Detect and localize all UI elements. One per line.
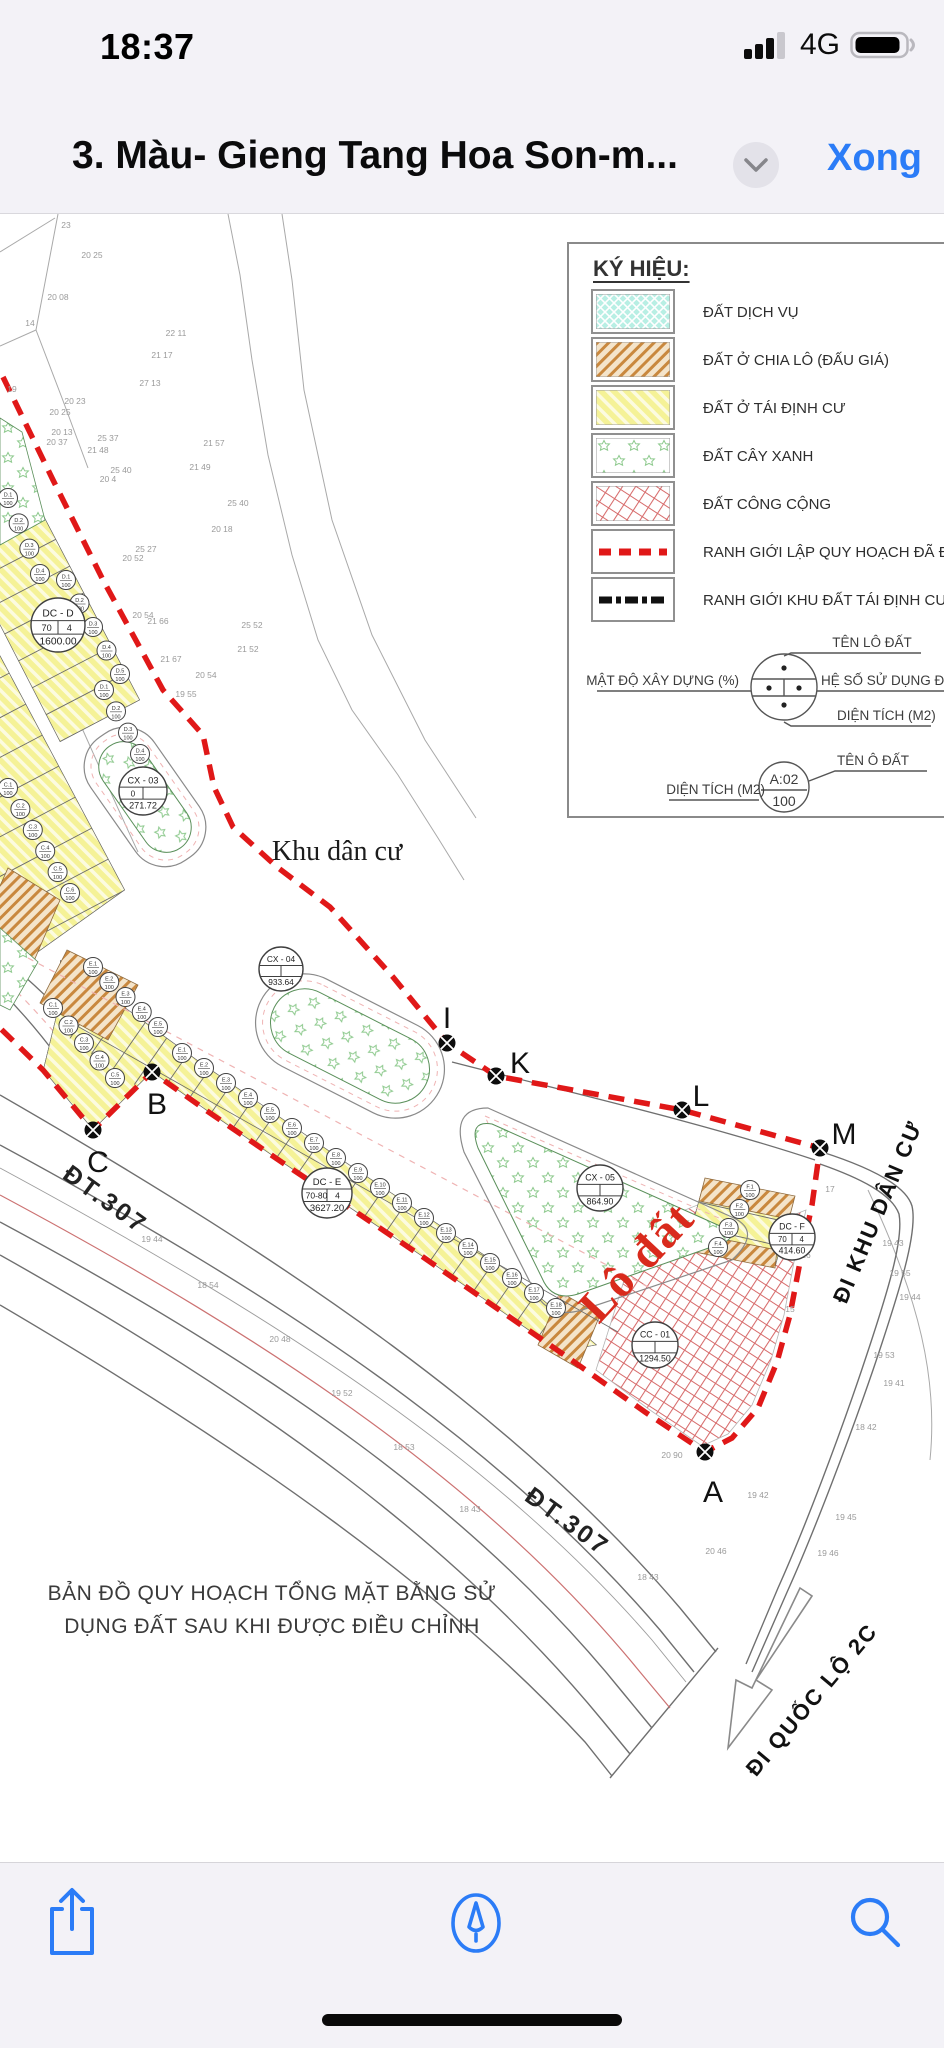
svg-text:100: 100	[265, 1116, 274, 1122]
svg-text:18 54: 18 54	[197, 1280, 219, 1290]
lot-circle: C.4100	[90, 1051, 109, 1070]
lot-circle: C.3100	[23, 821, 42, 840]
lot-circle: C.5100	[106, 1069, 125, 1088]
svg-text:D.3: D.3	[25, 543, 34, 549]
svg-text:70: 70	[778, 1235, 787, 1244]
svg-text:21 17: 21 17	[151, 350, 173, 360]
svg-text:K: K	[510, 1047, 530, 1080]
svg-text:4: 4	[67, 623, 72, 633]
svg-text:20 90: 20 90	[661, 1450, 683, 1460]
lot-circle: D.4100	[131, 745, 150, 764]
status-bar: 18:37 4G	[0, 0, 944, 90]
plot-circle-CC-01: CC - 011294.50	[632, 1322, 678, 1368]
svg-text:E.9: E.9	[354, 1168, 362, 1174]
svg-text:E.12: E.12	[418, 1213, 429, 1219]
svg-text:70-80: 70-80	[306, 1191, 328, 1201]
lot-circle: F.3100	[719, 1219, 738, 1238]
svg-text:100: 100	[199, 1071, 208, 1077]
legend-item-tai-dinh-cu: ĐẤT Ở TÁI ĐỊNH CƯ	[591, 387, 846, 430]
plot-circle-CX-03: CX - 030271.72	[119, 767, 167, 815]
boundary-point-A: A	[697, 1444, 724, 1510]
svg-text:1294.50: 1294.50	[639, 1354, 671, 1364]
svg-text:21 48: 21 48	[87, 445, 109, 455]
svg-text:19: 19	[7, 384, 17, 394]
svg-text:20 25: 20 25	[81, 250, 103, 260]
svg-text:100: 100	[28, 833, 37, 839]
svg-text:C.5: C.5	[53, 867, 62, 873]
legend-dien-tich: DIỆN TÍCH (M2)	[837, 708, 936, 723]
svg-text:E.5: E.5	[266, 1108, 274, 1114]
lot-circle: C.6100	[61, 884, 80, 903]
svg-text:22 11: 22 11	[166, 328, 187, 338]
svg-text:E.3: E.3	[222, 1078, 230, 1084]
svg-text:E.4: E.4	[244, 1093, 252, 1099]
svg-text:E.10: E.10	[374, 1183, 385, 1189]
svg-text:70: 70	[42, 623, 52, 633]
svg-text:25 52: 25 52	[241, 620, 263, 630]
svg-text:C.4: C.4	[41, 846, 50, 852]
lot-circle: C.1100	[44, 999, 63, 1018]
svg-text:C.1: C.1	[4, 783, 13, 789]
home-indicator[interactable]	[322, 2014, 622, 2026]
svg-text:100: 100	[88, 970, 97, 976]
svg-text:E.17: E.17	[528, 1288, 539, 1294]
lot-circle: C.4100	[36, 842, 55, 861]
svg-text:20 4: 20 4	[100, 474, 117, 484]
svg-text:100: 100	[115, 677, 124, 683]
svg-text:100: 100	[123, 736, 132, 742]
svg-text:3627.20: 3627.20	[310, 1203, 344, 1214]
svg-text:19 43: 19 43	[882, 1238, 904, 1248]
svg-text:100: 100	[14, 526, 23, 532]
svg-text:100: 100	[713, 1250, 722, 1256]
markup-button[interactable]	[444, 1891, 508, 1958]
lot-circle: D.4100	[31, 565, 50, 584]
legend-title: KÝ HIỆU:	[593, 256, 690, 282]
svg-text:E.18: E.18	[550, 1303, 561, 1309]
svg-text:21 52: 21 52	[237, 644, 259, 654]
svg-text:100: 100	[331, 1161, 340, 1167]
svg-text:D.4: D.4	[136, 749, 145, 755]
svg-text:17: 17	[825, 1184, 835, 1194]
legend-sample-code: A:02	[770, 771, 799, 787]
svg-text:19 42: 19 42	[747, 1490, 769, 1500]
battery-icon	[850, 29, 918, 61]
lot-circle: D.5100	[111, 665, 130, 684]
svg-text:19 44: 19 44	[899, 1292, 921, 1302]
svg-text:414.60: 414.60	[779, 1246, 806, 1256]
svg-text:100: 100	[243, 1101, 252, 1107]
svg-text:100: 100	[65, 896, 74, 902]
svg-text:100: 100	[48, 1011, 57, 1017]
lot-circle: E.1100	[84, 958, 103, 977]
svg-text:CC - 01: CC - 01	[640, 1330, 670, 1340]
swatch-cyan-crosshatch	[591, 289, 675, 334]
svg-text:100: 100	[88, 630, 97, 636]
svg-text:C.3: C.3	[80, 1038, 89, 1044]
svg-text:100: 100	[95, 1064, 104, 1070]
lot-circle: E.4100	[239, 1089, 258, 1108]
svg-text:271.72: 271.72	[129, 800, 157, 810]
svg-text:100: 100	[3, 501, 12, 507]
svg-text:100: 100	[102, 654, 111, 660]
svg-text:19 41: 19 41	[883, 1378, 905, 1388]
lot-circle: E.5100	[149, 1018, 168, 1037]
svg-text:100: 100	[309, 1146, 318, 1152]
svg-text:100: 100	[110, 1081, 119, 1087]
svg-text:20 18: 20 18	[211, 524, 233, 534]
svg-text:21 57: 21 57	[203, 438, 225, 448]
clock: 18:37	[100, 26, 195, 68]
lot-circle: D.2100	[9, 514, 28, 533]
svg-text:E.15: E.15	[484, 1258, 495, 1264]
caption-line-1: BẢN ĐỒ QUY HOẠCH TỔNG MẶT BẰNG SỬ	[48, 1578, 497, 1611]
svg-text:C.1: C.1	[49, 1003, 58, 1009]
svg-text:100: 100	[419, 1221, 428, 1227]
svg-text:100: 100	[735, 1212, 744, 1218]
chevron-down-icon	[744, 157, 768, 173]
svg-text:D.1: D.1	[4, 493, 13, 499]
swatch-black-dashed	[591, 577, 675, 622]
svg-text:100: 100	[61, 583, 70, 589]
legend-item-ranh-gioi-den: RANH GIỚI KHU ĐẤT TÁI ĐỊNH CƯ, ĐẤT DỊCH …	[591, 579, 944, 622]
svg-text:0: 0	[131, 789, 136, 798]
svg-text:100: 100	[724, 1231, 733, 1237]
navigation-bar: 3. Màu- Gieng Tang Hoa Son-m... Xong	[0, 90, 944, 214]
lot-circle: E.13100	[437, 1224, 456, 1243]
svg-text:D.2: D.2	[75, 598, 84, 604]
svg-text:D.4: D.4	[36, 569, 45, 575]
svg-text:100: 100	[397, 1206, 406, 1212]
svg-text:C.2: C.2	[64, 1020, 73, 1026]
svg-text:20 37: 20 37	[46, 437, 68, 447]
svg-text:100: 100	[287, 1131, 296, 1137]
svg-text:100: 100	[64, 1029, 73, 1035]
legend-item-ranh-gioi-do: RANH GIỚI LẬP QUY HOẠCH ĐÃ ĐƯỢC PHÊ DU	[591, 531, 944, 574]
svg-text:19 55: 19 55	[175, 689, 197, 699]
svg-text:100: 100	[35, 577, 44, 583]
svg-text:100: 100	[41, 854, 50, 860]
lot-circle: E.5100	[261, 1104, 280, 1123]
svg-text:15: 15	[785, 1304, 795, 1314]
svg-text:21 67: 21 67	[160, 654, 182, 664]
lot-circle: E.7100	[305, 1134, 324, 1153]
lot-circle: D.1100	[95, 681, 114, 700]
svg-text:20 48: 20 48	[269, 1334, 291, 1344]
map-canvas[interactable]: 2320 2520 081422 1121 1727 131920 2320 2…	[0, 213, 944, 1862]
svg-text:20 13: 20 13	[51, 427, 73, 437]
svg-text:E.3: E.3	[121, 992, 129, 998]
caption-line-2: DỤNG ĐẤT SAU KHI ĐƯỢC ĐIỀU CHỈNH	[48, 1611, 497, 1644]
svg-text:F.2: F.2	[736, 1204, 743, 1210]
svg-text:100: 100	[551, 1311, 560, 1317]
svg-text:20 25: 20 25	[49, 407, 71, 417]
lot-circle: E.4100	[132, 1003, 151, 1022]
lot-circle: F.1100	[741, 1181, 760, 1200]
swatch-yellow-hatch	[591, 385, 675, 430]
svg-text:19 44: 19 44	[141, 1234, 163, 1244]
svg-text:E.4: E.4	[138, 1007, 146, 1013]
lot-circle: E.10100	[371, 1179, 390, 1198]
lot-circle: E.18100	[547, 1299, 566, 1318]
cellular-signal-icon	[744, 29, 790, 61]
svg-text:25 40: 25 40	[227, 498, 249, 508]
svg-text:D.1: D.1	[62, 575, 71, 581]
svg-text:A: A	[703, 1476, 723, 1509]
lot-circle: C.5100	[48, 863, 67, 882]
svg-text:100: 100	[121, 1000, 130, 1006]
svg-text:18 43: 18 43	[637, 1572, 659, 1582]
svg-text:20 52: 20 52	[122, 553, 144, 563]
lot-circle: F.2100	[730, 1200, 749, 1219]
label-khu-dan-cu: Khu dân cư	[272, 836, 402, 868]
svg-text:18 53: 18 53	[393, 1442, 415, 1452]
lot-circle: E.3100	[217, 1074, 236, 1093]
svg-text:D.1: D.1	[100, 685, 109, 691]
svg-text:F.4: F.4	[714, 1242, 721, 1248]
svg-text:DC - D: DC - D	[42, 608, 73, 619]
document-title: 3. Màu- Gieng Tang Hoa Son-m...	[72, 134, 678, 178]
legend-ten-lo-dat: TÊN LÔ ĐẤT	[832, 635, 912, 650]
svg-text:100: 100	[25, 552, 34, 558]
search-button[interactable]	[844, 1891, 906, 1956]
svg-text:100: 100	[105, 985, 114, 991]
svg-text:E.1: E.1	[178, 1048, 186, 1054]
legend-sample-area: 100	[772, 793, 796, 809]
swatch-red-dashed	[591, 529, 675, 574]
svg-text:100: 100	[16, 812, 25, 818]
svg-text:D.5: D.5	[116, 669, 125, 675]
svg-text:I: I	[443, 1002, 451, 1035]
boundary-point-M: M	[812, 1118, 857, 1157]
svg-text:C.4: C.4	[95, 1055, 104, 1061]
svg-text:23: 23	[61, 220, 71, 230]
svg-text:20 54: 20 54	[195, 670, 217, 680]
svg-text:18 42: 18 42	[855, 1422, 877, 1432]
svg-text:100: 100	[53, 875, 62, 881]
svg-text:D.2: D.2	[112, 706, 121, 712]
svg-text:19 52: 19 52	[331, 1388, 353, 1398]
lot-circle: E.17100	[525, 1284, 544, 1303]
lot-circle: D.3100	[20, 539, 39, 558]
svg-text:4: 4	[335, 1191, 340, 1201]
svg-text:E.2: E.2	[105, 977, 113, 983]
svg-text:19 46: 19 46	[817, 1548, 839, 1558]
share-icon	[44, 1885, 100, 1959]
svg-text:100: 100	[375, 1191, 384, 1197]
search-icon	[844, 1891, 906, 1953]
svg-text:E.5: E.5	[154, 1022, 162, 1028]
legend-item-dich-vu: ĐẤT DỊCH VỤ	[591, 291, 799, 334]
svg-text:E.8: E.8	[332, 1153, 340, 1159]
lot-circle: D.2100	[107, 702, 126, 721]
lot-circle: D.3100	[119, 723, 138, 742]
lot-circle: E.12100	[415, 1209, 434, 1228]
svg-text:C.3: C.3	[29, 825, 38, 831]
legend-box: KÝ HIỆU: ĐẤT DỊCH VỤ ĐẤT Ở CHIA LÔ (ĐẤU …	[567, 242, 944, 818]
svg-text:27 13: 27 13	[139, 378, 161, 388]
svg-text:4: 4	[799, 1235, 804, 1244]
svg-text:20 46: 20 46	[705, 1546, 727, 1556]
svg-text:100: 100	[353, 1176, 362, 1182]
svg-text:20 08: 20 08	[47, 292, 69, 302]
svg-text:1600.00: 1600.00	[39, 636, 76, 647]
svg-text:D.3: D.3	[124, 727, 133, 733]
lot-circle: C.1100	[0, 779, 18, 798]
svg-text:100: 100	[441, 1236, 450, 1242]
plot-circle-DC-E: DC - E70-8043627.20	[302, 1168, 352, 1218]
svg-text:100: 100	[153, 1030, 162, 1036]
lot-circle: E.16100	[503, 1269, 522, 1288]
svg-text:L: L	[693, 1080, 710, 1113]
legend-item-chia-lo: ĐẤT Ở CHIA LÔ (ĐẤU GIÁ)	[591, 339, 889, 382]
svg-text:100: 100	[135, 757, 144, 763]
plot-circle-DC-F: DC - F704414.60	[769, 1214, 815, 1260]
share-button[interactable]	[44, 1885, 100, 1962]
plot-circle-CX-04: CX - 04933.64	[259, 947, 303, 991]
svg-text:B: B	[147, 1088, 167, 1121]
svg-text:DC - E: DC - E	[313, 1177, 342, 1188]
lot-circle: C.2100	[11, 800, 30, 819]
plot-circle-DC-D: DC - D7041600.00	[31, 598, 85, 652]
svg-text:19 45: 19 45	[835, 1512, 857, 1522]
lot-circle: E.14100	[459, 1239, 478, 1258]
legend-item-cay-xanh: ĐẤT CÂY XANH	[591, 435, 813, 478]
svg-text:E.14: E.14	[462, 1243, 473, 1249]
svg-text:E.6: E.6	[288, 1123, 296, 1129]
svg-text:100: 100	[177, 1056, 186, 1062]
legend-item-cong-cong: ĐẤT CÔNG CỘNG	[591, 483, 831, 526]
lot-circle: E.2100	[100, 973, 119, 992]
svg-text:C.2: C.2	[16, 804, 25, 810]
svg-text:D.2: D.2	[14, 518, 23, 524]
svg-text:E.1: E.1	[89, 962, 97, 968]
svg-text:E.13: E.13	[440, 1228, 451, 1234]
svg-text:100: 100	[221, 1086, 230, 1092]
network-type-label: 4G	[800, 28, 840, 62]
swatch-green-stars	[591, 433, 675, 478]
swatch-orange-hatch	[591, 337, 675, 382]
svg-text:21 49: 21 49	[189, 462, 211, 472]
svg-text:E.7: E.7	[310, 1138, 318, 1144]
svg-text:100: 100	[529, 1296, 538, 1302]
iphone-screen: 18:37 4G 3. Màu- Gieng Tang Hoa Son-m...…	[0, 0, 944, 2048]
svg-text:100: 100	[745, 1193, 754, 1199]
lot-circle: E.2100	[195, 1059, 214, 1078]
swatch-red-grid	[591, 481, 675, 526]
svg-text:19 55: 19 55	[889, 1268, 911, 1278]
svg-text:C.6: C.6	[66, 888, 75, 894]
markup-pen-icon	[444, 1891, 508, 1955]
legend-ten-o-dat: TÊN Ô ĐẤT	[837, 753, 909, 768]
lot-circle: E.3100	[116, 988, 135, 1007]
legend-he-so: HỆ SỐ SỬ DỤNG ĐẤ	[821, 673, 944, 688]
svg-text:100: 100	[463, 1251, 472, 1257]
svg-text:E.2: E.2	[200, 1063, 208, 1069]
lot-circle: D.1100	[57, 571, 76, 590]
svg-text:100: 100	[3, 791, 12, 797]
lot-circle: E.6100	[283, 1119, 302, 1138]
svg-text:100: 100	[99, 693, 108, 699]
svg-text:20 23: 20 23	[64, 396, 86, 406]
svg-text:19 53: 19 53	[873, 1350, 895, 1360]
lot-circle: D.3100	[84, 618, 103, 637]
lot-circle: E.9100	[349, 1164, 368, 1183]
lot-circle: E.11100	[393, 1194, 412, 1213]
svg-text:25 37: 25 37	[97, 433, 119, 443]
lot-circle: C.3100	[75, 1034, 94, 1053]
boundary-point-I: I	[439, 1002, 456, 1052]
lot-circle: C.2100	[59, 1016, 78, 1035]
legend-mat-do: MẬT ĐỘ XÂY DỰNG (%)	[586, 673, 739, 688]
svg-text:18 43: 18 43	[459, 1504, 481, 1514]
svg-text:F.3: F.3	[725, 1223, 732, 1229]
svg-text:M: M	[832, 1118, 857, 1151]
svg-text:E.11: E.11	[397, 1198, 408, 1204]
legend-sample-dien-tich: DIỆN TÍCH (M2)	[666, 782, 765, 797]
svg-text:100: 100	[111, 714, 120, 720]
lot-circle: D.1100	[0, 489, 18, 508]
svg-text:F.1: F.1	[746, 1185, 753, 1191]
plot-circle-CX-05: CX - 05864.90	[577, 1165, 623, 1211]
svg-text:E.16: E.16	[506, 1273, 517, 1279]
svg-text:D.3: D.3	[89, 622, 98, 628]
lot-circle: E.15100	[481, 1254, 500, 1273]
svg-text:100: 100	[79, 1046, 88, 1052]
lot-circle: D.4100	[97, 641, 116, 660]
svg-text:21 66: 21 66	[147, 616, 169, 626]
svg-text:C.5: C.5	[111, 1073, 120, 1079]
svg-text:D.4: D.4	[102, 645, 111, 651]
svg-text:100: 100	[485, 1266, 494, 1272]
svg-text:DC - F: DC - F	[779, 1222, 805, 1232]
svg-text:CX - 03: CX - 03	[128, 775, 159, 785]
lot-circle: F.4100	[709, 1238, 728, 1257]
lot-circle: E.1100	[173, 1044, 192, 1063]
svg-text:100: 100	[507, 1281, 516, 1287]
done-button[interactable]: Xong	[827, 137, 922, 180]
svg-text:100: 100	[137, 1015, 146, 1021]
title-menu-button[interactable]	[733, 142, 779, 188]
map-caption: BẢN ĐỒ QUY HOẠCH TỔNG MẶT BẰNG SỬ DỤNG Đ…	[48, 1578, 497, 1643]
svg-text:14: 14	[25, 318, 35, 328]
svg-text:CX - 05: CX - 05	[585, 1173, 615, 1183]
lot-circle: E.8100	[327, 1149, 346, 1168]
svg-text:CX - 04: CX - 04	[267, 954, 296, 964]
svg-text:933.64: 933.64	[268, 977, 294, 987]
svg-text:864.90: 864.90	[587, 1197, 614, 1207]
